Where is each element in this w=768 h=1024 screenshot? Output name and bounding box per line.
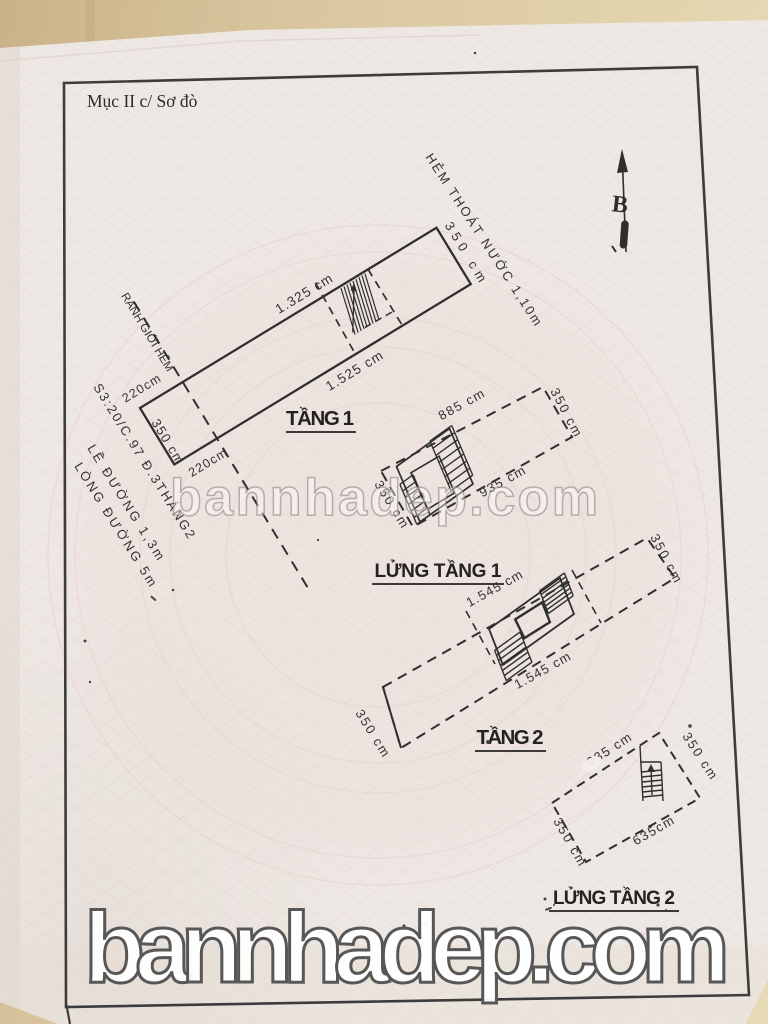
svg-text:LỬNG TẦNG 1: LỬNG TẦNG 1 xyxy=(375,560,502,582)
svg-text:TẦNG 2: TẦNG 2 xyxy=(477,726,544,749)
svg-text:Mục II c/ Sơ đò: Mục II c/ Sơ đò xyxy=(87,91,198,111)
svg-text:bannhadep.com: bannhadep.com xyxy=(84,892,730,1004)
svg-text:TẦNG 1: TẦNG 1 xyxy=(286,407,354,430)
svg-text:B: B xyxy=(611,191,630,219)
